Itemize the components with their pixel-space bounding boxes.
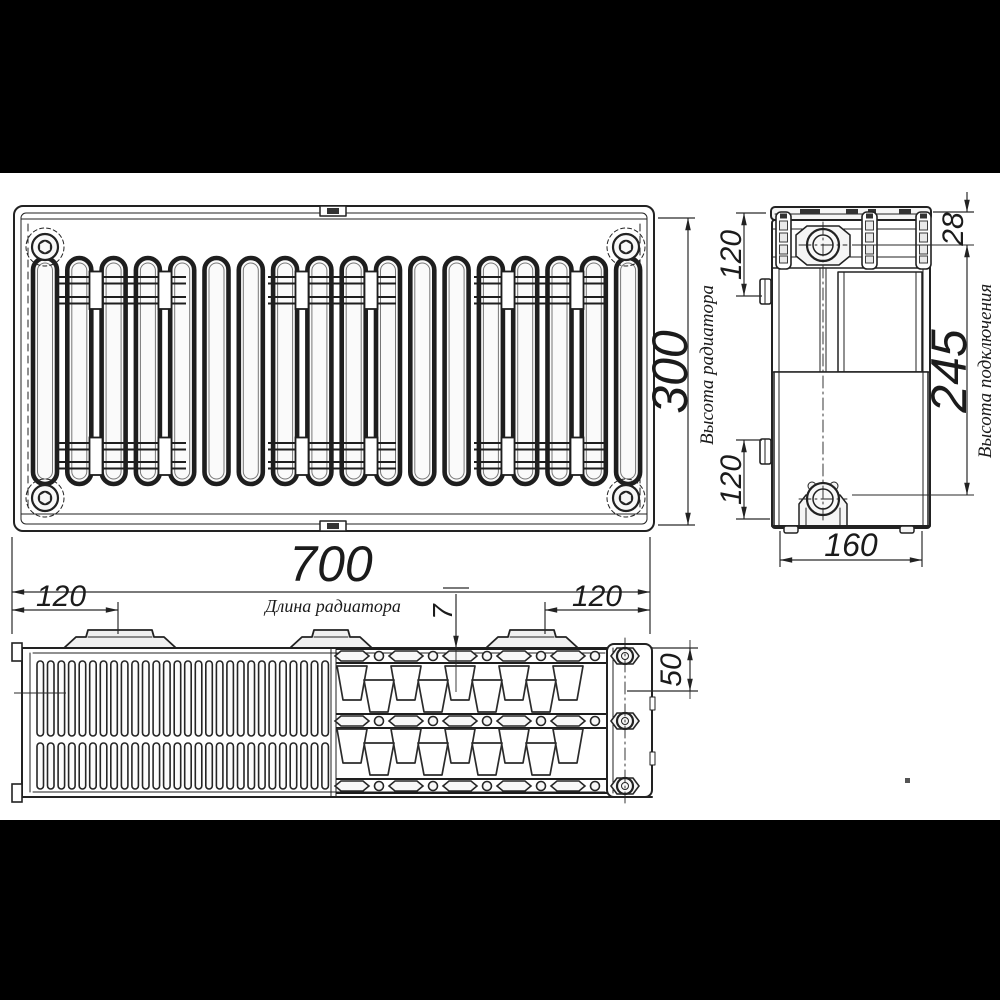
grille-clip bbox=[571, 272, 584, 310]
rail-hex bbox=[389, 651, 423, 661]
plan-louver bbox=[301, 743, 308, 789]
rail-hex bbox=[335, 781, 369, 791]
front-grille-slat bbox=[205, 258, 229, 484]
plan-louver bbox=[238, 661, 245, 736]
side-foot bbox=[784, 526, 798, 533]
front-view bbox=[14, 206, 654, 531]
plan-louver bbox=[216, 661, 223, 736]
rail-hex bbox=[335, 651, 369, 661]
side-bracket-cell bbox=[866, 256, 874, 263]
rail-node bbox=[375, 782, 384, 791]
side-bracket-nub bbox=[920, 214, 927, 219]
side-bracket-cell bbox=[780, 245, 788, 254]
dim-text-bracket-bottom: 120 bbox=[715, 455, 748, 505]
plan-louver bbox=[280, 743, 287, 789]
front-grille-slat bbox=[616, 258, 640, 484]
plan-end-notch bbox=[650, 752, 655, 765]
plan-louver bbox=[174, 743, 181, 789]
plan-louver bbox=[185, 743, 192, 789]
rail-hex bbox=[443, 716, 477, 726]
grille-clip bbox=[159, 438, 172, 476]
plan-louver bbox=[311, 743, 318, 789]
plan-louver bbox=[79, 661, 86, 736]
screw-outer bbox=[32, 485, 58, 511]
dim-text-height: 300 bbox=[642, 330, 698, 414]
plan-louver bbox=[280, 661, 287, 736]
plan-louver bbox=[259, 743, 266, 789]
side-bracket-cell bbox=[920, 245, 928, 254]
plan-louver bbox=[322, 661, 329, 736]
plan-louver bbox=[48, 743, 55, 789]
side-cap-tick bbox=[800, 209, 820, 214]
rail-node bbox=[591, 717, 600, 726]
side-bracket-cell bbox=[920, 256, 928, 263]
plan-left-tab-top bbox=[12, 643, 22, 661]
plan-louver bbox=[143, 743, 150, 789]
grille-clip bbox=[365, 438, 378, 476]
plan-louver bbox=[195, 661, 202, 736]
dim-label-connection-height: Высота подключения bbox=[975, 284, 996, 458]
dim-text-top-offset: 28 bbox=[937, 212, 970, 247]
rail-hex bbox=[389, 716, 423, 726]
plan-louver bbox=[111, 743, 118, 789]
plan-louver bbox=[58, 743, 65, 789]
rail-hex bbox=[551, 651, 585, 661]
plan-louver bbox=[206, 661, 213, 736]
plan-louver bbox=[269, 743, 276, 789]
plan-louver bbox=[206, 743, 213, 789]
rail-node bbox=[375, 717, 384, 726]
front-bottom-notch-fill bbox=[327, 523, 339, 529]
plan-louver bbox=[322, 743, 329, 789]
plan-louver bbox=[248, 661, 255, 736]
side-bracket-cell bbox=[866, 233, 874, 242]
grille-clip bbox=[365, 272, 378, 310]
rail-node bbox=[591, 652, 600, 661]
side-bracket-cell bbox=[920, 221, 928, 230]
rail-node bbox=[591, 782, 600, 791]
rail-node bbox=[537, 652, 546, 661]
grille-clip bbox=[502, 438, 515, 476]
plan-louver bbox=[69, 661, 76, 736]
plan-louver bbox=[121, 661, 128, 736]
rail-node bbox=[537, 717, 546, 726]
plan-louver bbox=[195, 743, 202, 789]
letterbox-bottom bbox=[0, 820, 1000, 1000]
side-front-panel bbox=[774, 372, 928, 526]
screw-outer bbox=[613, 234, 639, 260]
screw-outer bbox=[613, 485, 639, 511]
rail-hex bbox=[551, 781, 585, 791]
plan-louver bbox=[174, 661, 181, 736]
dim-text-bracket-top: 120 bbox=[715, 230, 748, 280]
rail-hex bbox=[497, 651, 531, 661]
plan-louver bbox=[290, 661, 297, 736]
rail-hex bbox=[497, 716, 531, 726]
grille-clip bbox=[296, 272, 309, 310]
letterbox-top bbox=[0, 0, 1000, 173]
dim-label-height: Высота радиатора bbox=[697, 285, 718, 445]
plan-louver bbox=[37, 743, 44, 789]
rail-node bbox=[537, 782, 546, 791]
plan-louver bbox=[100, 661, 107, 736]
grille-clip bbox=[90, 272, 103, 310]
plan-louver bbox=[311, 661, 318, 736]
dim-text-bracket-left: 120 bbox=[36, 580, 86, 613]
dim-text-length: 700 bbox=[289, 536, 373, 592]
plan-louver bbox=[153, 661, 160, 736]
grille-clip bbox=[90, 438, 103, 476]
plan-louver bbox=[48, 661, 55, 736]
rail-hex bbox=[551, 716, 585, 726]
plan-louver bbox=[216, 743, 223, 789]
plan-end-notch bbox=[650, 697, 655, 710]
plan-louver bbox=[290, 743, 297, 789]
front-grille-slat bbox=[410, 258, 434, 484]
plan-louver bbox=[79, 743, 86, 789]
plan-louver bbox=[37, 661, 44, 736]
screw-outer bbox=[32, 234, 58, 260]
side-bracket-cell bbox=[866, 245, 874, 254]
rail-node bbox=[429, 652, 438, 661]
dim-text-depth: 160 bbox=[824, 527, 878, 563]
dim-text-panel-thickness: 7 bbox=[427, 603, 458, 620]
grille-clip bbox=[502, 272, 515, 310]
side-cap-tick bbox=[899, 209, 911, 214]
rail-node bbox=[483, 652, 492, 661]
front-top-notch-fill bbox=[327, 208, 339, 214]
side-cap-tick bbox=[846, 209, 858, 214]
drawing-canvas: 700 Длина радиатора 300 Высота радиатора… bbox=[0, 0, 1000, 1000]
side-bracket-cell bbox=[780, 256, 788, 263]
rail-node bbox=[429, 782, 438, 791]
rail-hex bbox=[389, 781, 423, 791]
plan-louver bbox=[58, 661, 65, 736]
front-grille-slat bbox=[445, 258, 469, 484]
rail-node bbox=[483, 717, 492, 726]
side-foot bbox=[900, 526, 914, 533]
side-bracket-cell bbox=[866, 221, 874, 230]
plan-louver bbox=[164, 661, 171, 736]
plan-louver bbox=[227, 743, 234, 789]
plan-louver bbox=[90, 661, 97, 736]
front-grille-slat bbox=[239, 258, 263, 484]
plan-louver bbox=[121, 743, 128, 789]
rail-hex bbox=[443, 651, 477, 661]
plan-louver bbox=[90, 743, 97, 789]
dim-text-connection-height: 245 bbox=[921, 329, 977, 414]
rail-node bbox=[429, 717, 438, 726]
plan-louver bbox=[259, 661, 266, 736]
plan-louver bbox=[132, 743, 139, 789]
plan-louver bbox=[269, 661, 276, 736]
side-bracket-cell bbox=[780, 221, 788, 230]
plan-louver bbox=[111, 661, 118, 736]
plan-left-tab-bottom bbox=[12, 784, 22, 802]
front-grille-slat bbox=[33, 258, 57, 484]
plan-louver bbox=[238, 743, 245, 789]
rail-node bbox=[483, 782, 492, 791]
grille-clip bbox=[571, 438, 584, 476]
plan-louver bbox=[185, 661, 192, 736]
dim-label-length: Длина радиатора bbox=[263, 596, 401, 616]
side-view bbox=[760, 207, 931, 533]
plan-louver bbox=[164, 743, 171, 789]
grille-clip bbox=[296, 438, 309, 476]
plan-louver bbox=[132, 661, 139, 736]
plan-louver bbox=[301, 661, 308, 736]
plan-louver bbox=[227, 661, 234, 736]
dim-text-bracket-right: 120 bbox=[572, 580, 622, 613]
plan-louver bbox=[248, 743, 255, 789]
radiator-technical-drawing: 700 Длина радиатора 300 Высота радиатора… bbox=[0, 0, 1000, 1000]
grille-clip bbox=[159, 272, 172, 310]
side-bracket-cell bbox=[780, 233, 788, 242]
plan-louver bbox=[69, 743, 76, 789]
artifact-dot bbox=[905, 778, 910, 783]
plan-louver bbox=[143, 661, 150, 736]
side-bracket-nub bbox=[866, 214, 873, 219]
plan-louver bbox=[153, 743, 160, 789]
plan-louver bbox=[100, 743, 107, 789]
rail-node bbox=[375, 652, 384, 661]
side-bracket-nub bbox=[780, 214, 787, 219]
rail-hex bbox=[443, 781, 477, 791]
rail-hex bbox=[497, 781, 531, 791]
dim-text-end-width: 50 bbox=[655, 653, 688, 687]
rail-hex bbox=[335, 716, 369, 726]
side-bracket-cell bbox=[920, 233, 928, 242]
